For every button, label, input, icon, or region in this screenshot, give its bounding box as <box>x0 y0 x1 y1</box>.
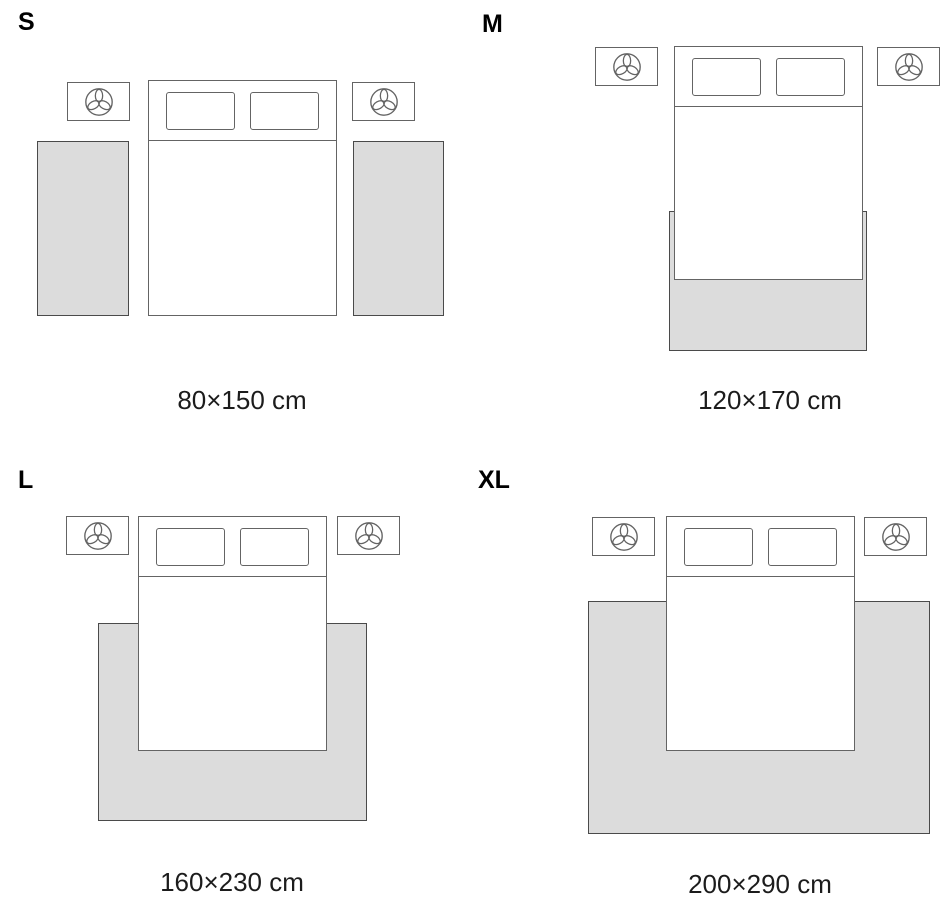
nightstand <box>66 516 129 555</box>
bed <box>666 516 855 751</box>
size-guide-canvas: S80×150 cmM120×170 cmL160×230 cmXL200×29… <box>0 0 950 900</box>
pillow <box>156 528 225 566</box>
pillow <box>240 528 309 566</box>
plant-top-view-icon <box>82 85 116 119</box>
nightstand <box>352 82 415 121</box>
pillow <box>776 58 845 96</box>
pillow <box>166 92 235 130</box>
pillow <box>684 528 753 566</box>
size-caption: 200×290 cm <box>600 871 920 897</box>
nightstand <box>67 82 130 121</box>
panel-letter: L <box>18 468 33 493</box>
plant-top-view-icon <box>610 50 644 84</box>
plant-top-view-icon <box>607 520 641 554</box>
bed <box>138 516 327 751</box>
bed <box>148 80 337 316</box>
bed <box>674 46 863 280</box>
size-caption: 160×230 cm <box>72 869 392 895</box>
nightstand <box>877 47 940 86</box>
plant-top-view-icon <box>352 519 386 553</box>
nightstand <box>337 516 400 555</box>
nightstand <box>592 517 655 556</box>
rug <box>37 141 129 316</box>
pillow <box>768 528 837 566</box>
nightstand <box>864 517 927 556</box>
plant-top-view-icon <box>81 519 115 553</box>
plant-top-view-icon <box>879 520 913 554</box>
size-caption: 80×150 cm <box>82 387 402 413</box>
size-caption: 120×170 cm <box>610 387 930 413</box>
pillow <box>250 92 319 130</box>
panel-letter: M <box>482 12 503 37</box>
plant-top-view-icon <box>892 50 926 84</box>
rug <box>353 141 444 316</box>
panel-letter: S <box>18 10 35 35</box>
plant-top-view-icon <box>367 85 401 119</box>
nightstand <box>595 47 658 86</box>
pillow <box>692 58 761 96</box>
panel-letter: XL <box>478 468 510 493</box>
